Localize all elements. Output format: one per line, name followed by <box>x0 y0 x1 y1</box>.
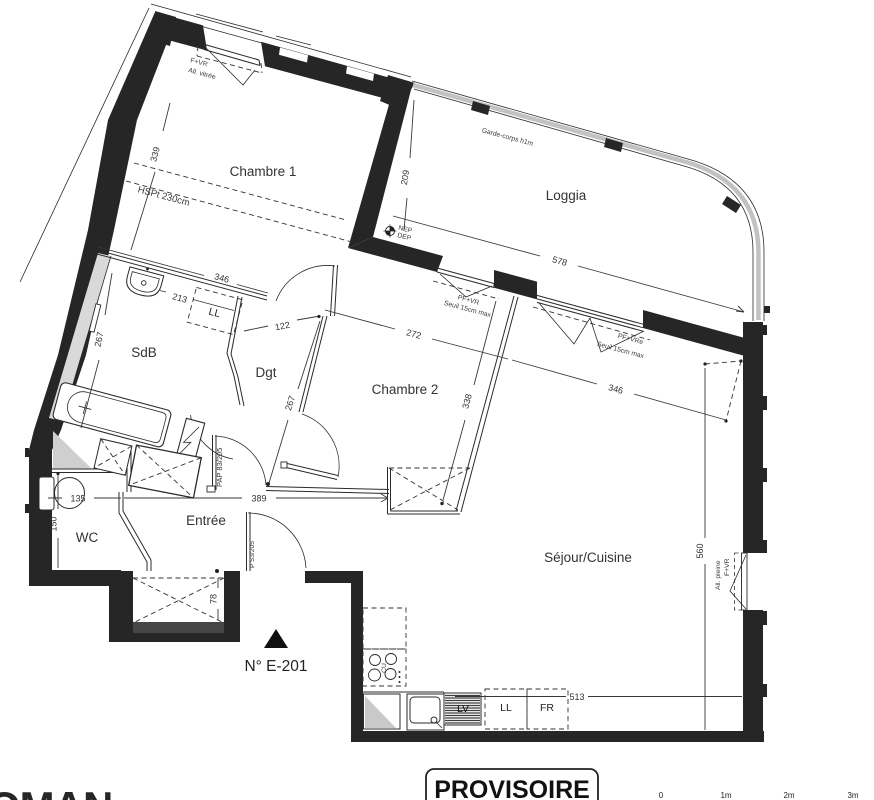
svg-text:FR: FR <box>540 702 554 714</box>
svg-text:513: 513 <box>569 692 584 702</box>
svg-text:LL: LL <box>500 702 512 714</box>
svg-text:Chambre 1: Chambre 1 <box>230 164 297 179</box>
svg-text:Dgt: Dgt <box>255 365 276 380</box>
svg-text:OMAN: OMAN <box>0 783 112 800</box>
svg-text:P 53/205: P 53/205 <box>249 541 256 568</box>
svg-text:3m: 3m <box>847 791 858 800</box>
svg-text:150: 150 <box>49 516 59 531</box>
svg-text:2m: 2m <box>783 791 794 800</box>
svg-text:LV: LV <box>457 703 469 715</box>
svg-text:All. pleine: All. pleine <box>715 560 722 590</box>
svg-text:0: 0 <box>659 791 664 800</box>
svg-text:N° E-201: N° E-201 <box>244 658 307 675</box>
svg-text:PAP 83/205: PAP 83/205 <box>215 448 224 487</box>
svg-text:WC: WC <box>76 530 99 545</box>
svg-text:389: 389 <box>251 494 266 504</box>
svg-text:Entrée: Entrée <box>186 513 226 528</box>
svg-text:PROVISOIRE: PROVISOIRE <box>434 776 590 800</box>
svg-text:78: 78 <box>209 594 219 604</box>
svg-text:Séjour/Cuisine: Séjour/Cuisine <box>544 550 632 565</box>
svg-text:F+VR: F+VR <box>724 558 731 576</box>
svg-text:560: 560 <box>695 543 705 558</box>
svg-text:135: 135 <box>70 494 85 504</box>
svg-text:SdB: SdB <box>131 345 157 360</box>
svg-text:Chambre 2: Chambre 2 <box>372 382 439 397</box>
svg-text:1m: 1m <box>720 791 731 800</box>
svg-text:Loggia: Loggia <box>546 188 587 203</box>
svg-text:CU: CU <box>381 663 388 673</box>
